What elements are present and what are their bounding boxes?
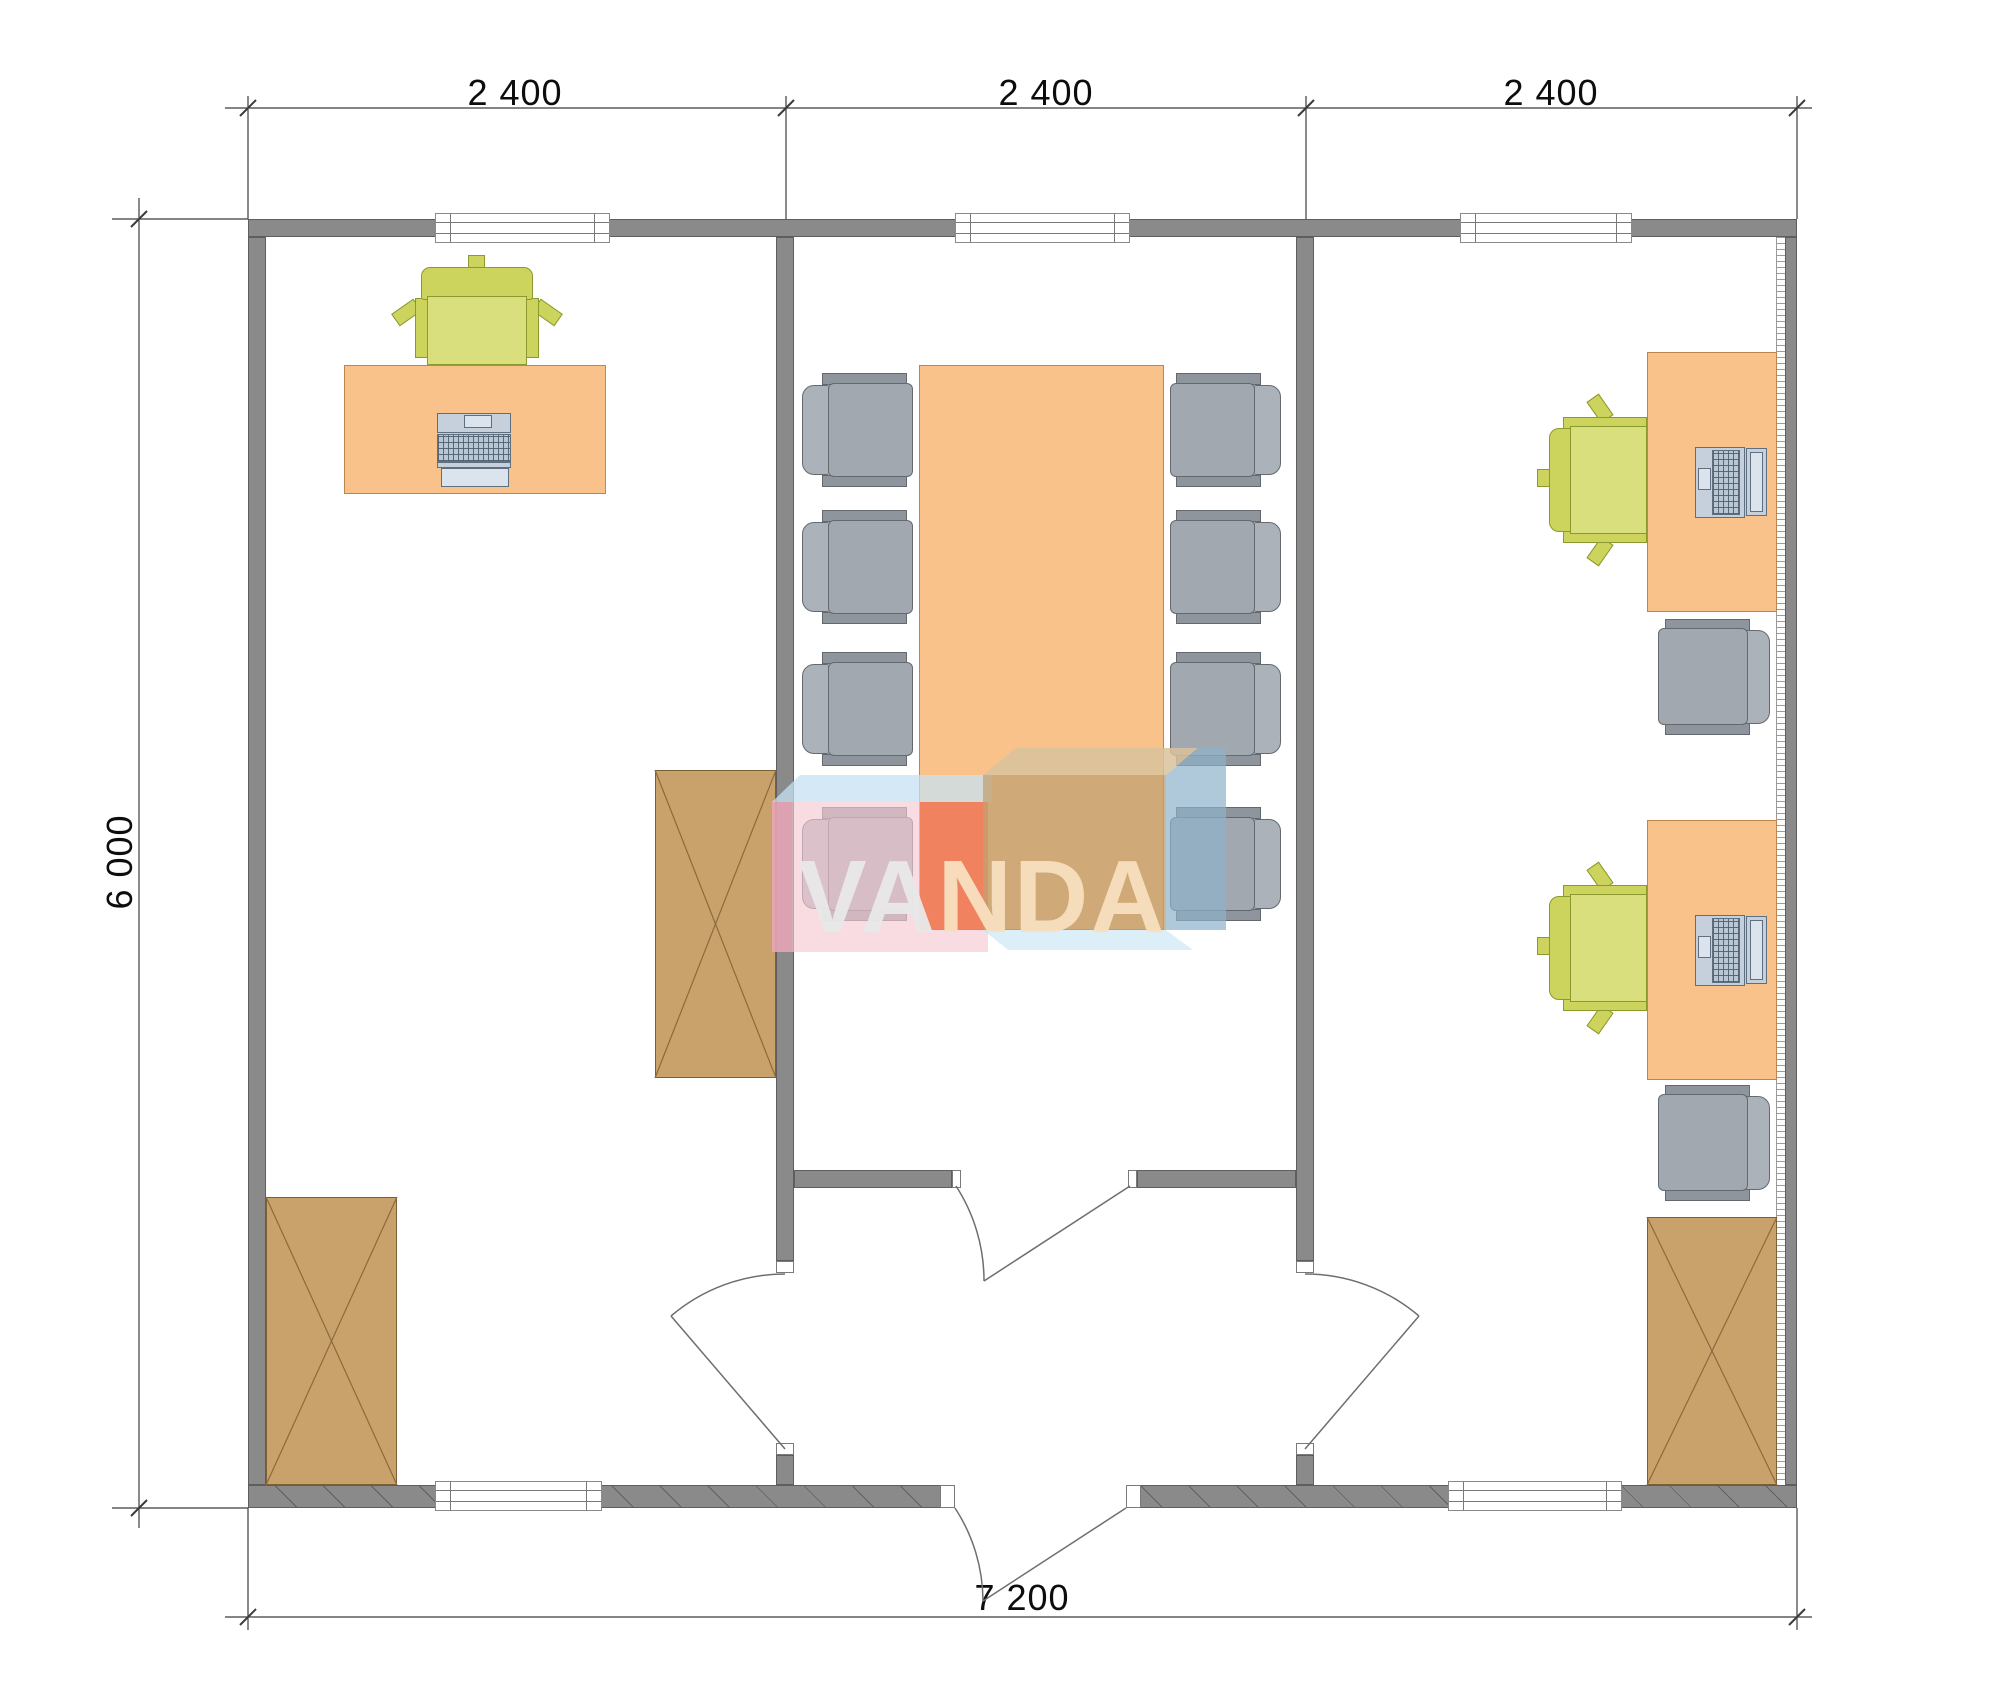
window-bottom-right [1448,1481,1622,1511]
chair-backrest [802,664,830,754]
wall-left [248,237,266,1485]
cabinet-left-room-middle [655,770,776,1078]
door-frame [776,1443,794,1455]
wall-interior-right [1296,237,1314,1261]
wall-vestibule-left [794,1170,952,1188]
office-chair-green-side [526,298,539,358]
door-left-room [671,1274,785,1449]
wall-interior-left-stub [776,1455,794,1485]
office-chair-green [427,296,527,365]
laptop-touchpad [1698,936,1711,958]
chair-backrest [1253,819,1281,909]
door-right-room [1305,1274,1419,1449]
visitor-chair [1658,628,1748,725]
cabinet-left-room-bottom [266,1197,397,1485]
conference-chair [1170,817,1255,911]
computer-mousepad [441,468,509,487]
entry-door-opening [955,1483,1126,1510]
conference-chair [828,662,913,756]
laptop-keyboard [1712,918,1740,983]
laptop-screen-panel [1750,920,1763,980]
door-frame [1128,1170,1137,1188]
dim-label-left: 6 000 [99,792,141,932]
chair-backrest [802,819,830,909]
wall-interior-right-stub [1296,1455,1314,1485]
dimension-top [225,96,1812,219]
wall-vestibule-right [1137,1170,1296,1188]
computer-monitor-stand [464,415,492,428]
window-top-left [435,213,610,243]
door-frame [776,1261,794,1273]
dim-label-top-1: 2 400 [445,72,585,114]
laptop-keyboard [1712,450,1740,515]
dim-label-bottom: 7 200 [952,1577,1092,1619]
laptop-screen-panel [1750,452,1763,512]
door-frame [1296,1261,1314,1273]
conference-table [919,365,1164,930]
floor-plan: 2 400 2 400 2 400 6 000 7 200 [0,0,2000,1704]
door-frame [1126,1485,1141,1508]
conference-chair [1170,520,1255,614]
window-top-right [1460,213,1632,243]
conference-chair [828,520,913,614]
door-frame [952,1170,961,1188]
chair-backrest [802,522,830,612]
window-top-middle [955,213,1130,243]
visitor-chair [1658,1094,1748,1191]
dim-label-top-2: 2 400 [976,72,1116,114]
window-bottom-left [435,1481,602,1511]
conference-chair [1170,383,1255,477]
watermark-shape-cube-bottom [983,930,1193,950]
conference-chair [828,383,913,477]
door-frame [940,1485,955,1508]
chair-backrest [1253,385,1281,475]
dim-label-top-3: 2 400 [1481,72,1621,114]
chair-backrest [1253,664,1281,754]
chair-backrest [1253,522,1281,612]
computer-keyboard [437,434,511,462]
wall-right-finish-hatch [1776,237,1785,1485]
cabinet-right-room [1647,1217,1777,1485]
office-chair-green [1570,426,1647,534]
door-frame [1296,1443,1314,1455]
office-chair-green [1570,894,1647,1002]
chair-backrest [802,385,830,475]
laptop-touchpad [1698,468,1711,490]
wall-interior-left [776,237,794,1261]
conference-chair [828,817,913,911]
conference-chair [1170,662,1255,756]
wall-right [1785,237,1797,1485]
door-middle-room [956,1186,1130,1281]
